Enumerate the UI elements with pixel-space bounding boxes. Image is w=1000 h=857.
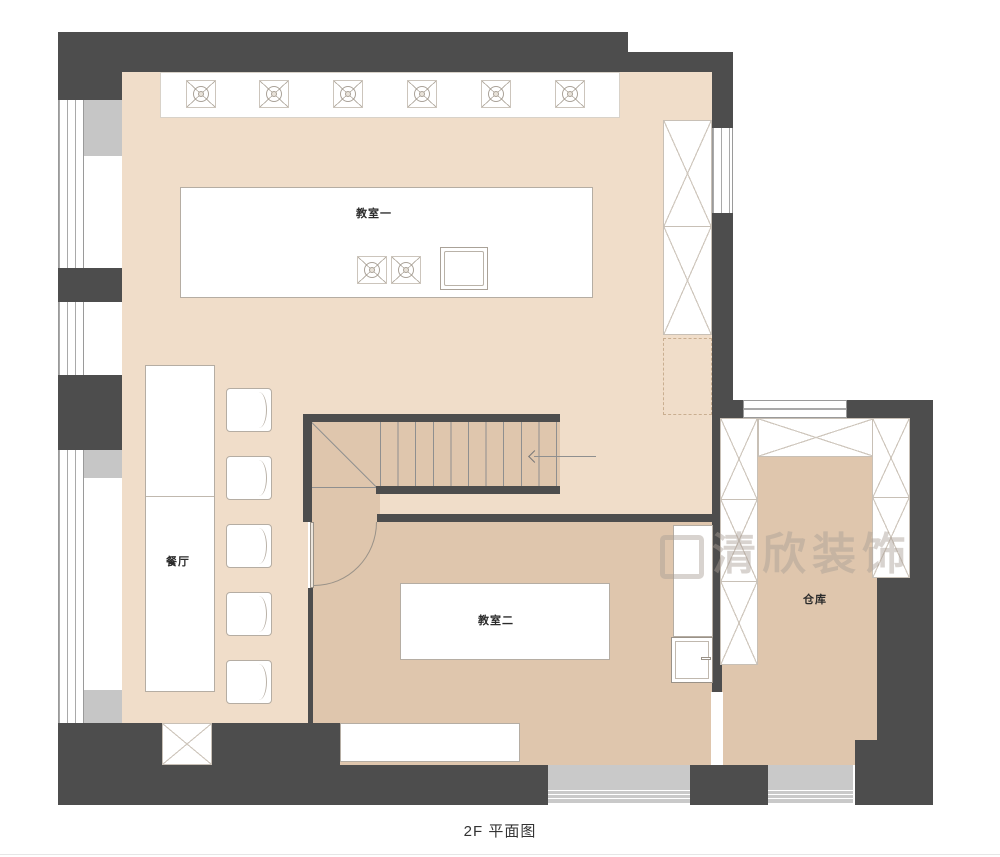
- classroom2-bench: [340, 723, 520, 762]
- south-wall-column-box: [162, 723, 212, 765]
- wall-stair-left: [303, 414, 312, 522]
- wall-east-upper: [712, 72, 733, 128]
- room-label-dining: 餐厅: [166, 553, 190, 569]
- ceiling-fan-icon: [333, 80, 363, 108]
- wall-storage-se-block: [855, 740, 933, 805]
- hall-cabinet-cell: [663, 226, 712, 335]
- room-label-storage: 仓库: [803, 591, 827, 607]
- storage-cabinet-cell: [720, 418, 758, 500]
- floor-stair-landing: [312, 422, 380, 522]
- wall-storage-east-upper: [908, 418, 933, 578]
- wall-south-bar: [58, 765, 548, 805]
- classroom1-equipment-box: [440, 247, 488, 290]
- dining-chair: [226, 660, 272, 704]
- stair-landing-line: [312, 487, 378, 488]
- plan-caption: 2F 平面图: [0, 820, 1000, 841]
- ceiling-fan-icon: [186, 80, 216, 108]
- appliance-handle-icon: [701, 657, 711, 660]
- wall-stair-top: [303, 414, 560, 422]
- wall-south-thick-1: [122, 723, 162, 765]
- window-sill-top: [84, 100, 122, 156]
- wall-storage-north-left: [712, 400, 743, 418]
- wall-south-mid: [690, 765, 768, 805]
- storage-cabinet-cell: [720, 581, 758, 665]
- room-label-classroom2: 教室二: [478, 612, 514, 628]
- dining-table-divider: [146, 496, 214, 497]
- dining-chair: [226, 456, 272, 500]
- stair-direction-arrow: [534, 456, 596, 457]
- wall-storage-east-lower: [877, 578, 933, 740]
- wall-south-thick-2: [212, 723, 340, 765]
- wall-west-pier-1: [58, 268, 122, 302]
- window-south-2: [768, 765, 853, 803]
- ceiling-fan-icon: [555, 80, 585, 108]
- floor-plan: 教室一 餐厅 教室二 仓库 清欣装饰 2F 平面图: [0, 0, 1000, 857]
- wall-north-east: [628, 52, 733, 72]
- room-label-classroom1: 教室一: [356, 205, 392, 221]
- wall-nw-corner: [58, 72, 122, 100]
- appliance-box: [671, 637, 713, 683]
- wall-classroom2-north: [377, 514, 722, 522]
- ceiling-fan-icon: [259, 80, 289, 108]
- dining-chair: [226, 388, 272, 432]
- dashed-future-cabinet: [663, 338, 712, 415]
- dining-chair: [226, 592, 272, 636]
- window-east: [712, 128, 733, 213]
- wall-storage-north-right: [847, 400, 933, 418]
- window-storage-north: [743, 400, 847, 418]
- storage-cabinet-cell: [872, 497, 910, 578]
- wall-east-mid: [712, 213, 733, 400]
- storage-cabinet-cell: [720, 499, 758, 582]
- storage-cabinet-cell: [872, 418, 910, 498]
- window-south-1: [548, 765, 690, 803]
- wall-dining-divider: [308, 588, 313, 765]
- ceiling-light-band: [160, 72, 620, 118]
- wall-north: [58, 32, 628, 72]
- bottom-divider: [0, 854, 1000, 855]
- wall-sw-corner: [58, 723, 122, 765]
- wall-stair-bottom: [376, 486, 560, 494]
- dining-chair: [226, 524, 272, 568]
- floor-storage-c: [722, 740, 855, 765]
- storage-cabinet-top: [758, 418, 874, 457]
- hall-cabinet-cell: [663, 120, 712, 227]
- window-sill-mid: [84, 450, 122, 478]
- wall-fixture-column: [673, 525, 713, 637]
- floor-storage-a: [758, 457, 877, 578]
- table-fan-icon: [357, 256, 387, 284]
- table-fan-icon: [391, 256, 421, 284]
- dining-table: [145, 365, 215, 692]
- wall-west-pier-2: [58, 375, 122, 450]
- ceiling-fan-icon: [481, 80, 511, 108]
- storage-door-opening: [711, 692, 723, 765]
- window-sill-bottom: [84, 690, 122, 723]
- ceiling-fan-icon: [407, 80, 437, 108]
